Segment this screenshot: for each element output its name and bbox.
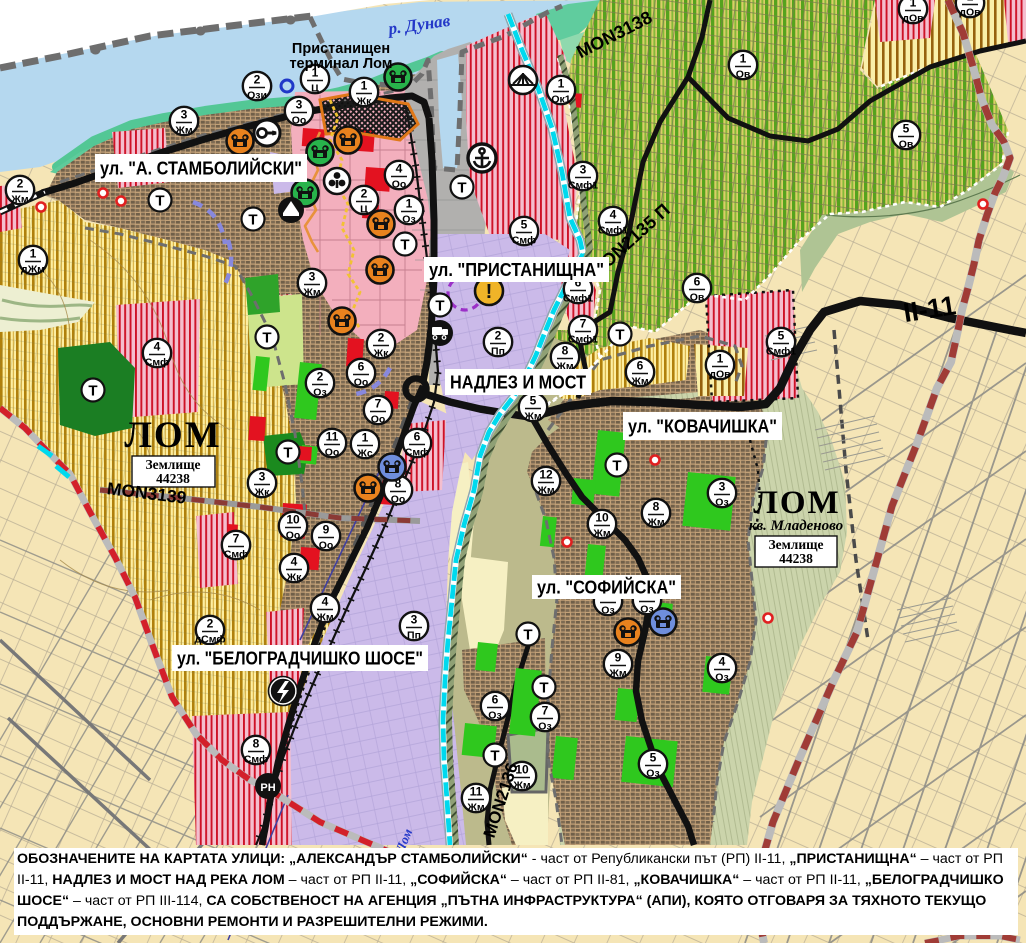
svg-text:ул. "ПРИСТАНИЩНА": ул. "ПРИСТАНИЩНА" <box>429 259 604 280</box>
svg-text:2: 2 <box>207 617 214 631</box>
svg-text:1: 1 <box>910 0 917 10</box>
svg-text:кв. Младеново: кв. Младеново <box>749 518 843 534</box>
svg-text:Ов: Ов <box>736 69 751 81</box>
svg-text:6: 6 <box>414 430 421 444</box>
svg-text:II-11, НАДЛЕЗ И МОСТ НАД РЕКА: II-11, НАДЛЕЗ И МОСТ НАД РЕКА ЛОМ – част… <box>17 870 1004 888</box>
svg-text:2: 2 <box>361 187 368 201</box>
svg-text:Оо: Оо <box>325 447 340 459</box>
svg-text:7: 7 <box>580 317 587 331</box>
svg-text:3: 3 <box>181 108 188 122</box>
svg-text:Оз: Оз <box>715 672 728 684</box>
svg-text:1: 1 <box>30 247 37 261</box>
svg-text:10: 10 <box>595 511 609 525</box>
svg-text:Жм: Жм <box>592 528 610 540</box>
svg-text:11: 11 <box>326 430 339 444</box>
svg-text:Ози: Ози <box>247 90 267 102</box>
svg-text:12: 12 <box>539 468 553 482</box>
svg-text:3: 3 <box>580 163 587 177</box>
svg-text:8: 8 <box>653 500 660 514</box>
svg-text:Смф1: Смф1 <box>766 346 796 358</box>
svg-text:7: 7 <box>542 704 549 718</box>
svg-text:Смф1: Смф1 <box>563 293 593 305</box>
svg-text:3: 3 <box>309 270 316 284</box>
svg-text:1: 1 <box>362 431 369 445</box>
svg-text:44238: 44238 <box>779 551 813 566</box>
svg-text:1: 1 <box>558 77 565 91</box>
svg-text:дОв: дОв <box>959 7 981 19</box>
svg-text:Жм: Жм <box>315 612 333 624</box>
svg-text:ЛОМ: ЛОМ <box>753 485 840 521</box>
svg-text:Смф: Смф <box>244 754 268 766</box>
svg-text:Т: Т <box>155 193 164 210</box>
svg-text:Оз: Оз <box>313 387 326 399</box>
svg-text:Т: Т <box>283 445 292 462</box>
svg-text:1: 1 <box>717 352 724 366</box>
svg-text:Жм: Жм <box>630 376 648 388</box>
svg-text:Оо: Оо <box>319 540 334 552</box>
svg-text:11: 11 <box>470 785 483 799</box>
svg-text:ШОСЕ“ – част от РП III-114, СА: ШОСЕ“ – част от РП III-114, СА СОБСТВЕНО… <box>17 893 986 909</box>
svg-text:Смф1: Смф1 <box>568 180 598 192</box>
svg-text:7: 7 <box>375 397 382 411</box>
svg-text:Оз: Оз <box>402 214 415 226</box>
svg-text:8: 8 <box>562 344 569 358</box>
svg-text:Смф1: Смф1 <box>568 334 598 346</box>
svg-text:Оо: Оо <box>371 414 386 426</box>
svg-text:ул. "А. СТАМБОЛИЙСКИ": ул. "А. СТАМБОЛИЙСКИ" <box>100 158 302 179</box>
svg-text:2: 2 <box>378 331 385 345</box>
svg-text:Т: Т <box>615 327 624 344</box>
svg-text:Жм: Жм <box>174 125 192 137</box>
svg-text:Т: Т <box>539 680 548 697</box>
svg-text:ул. "КОВАЧИШКА": ул. "КОВАЧИШКА" <box>628 416 777 437</box>
svg-text:Т: Т <box>523 627 532 644</box>
svg-text:5: 5 <box>521 218 528 232</box>
svg-text:терминал Лом: терминал Лом <box>289 56 392 72</box>
svg-text:2: 2 <box>17 177 24 191</box>
svg-text:2: 2 <box>254 73 261 87</box>
svg-text:4: 4 <box>719 655 726 669</box>
svg-text:Ок1: Ок1 <box>551 94 570 106</box>
svg-text:Т: Т <box>400 237 409 254</box>
svg-text:3: 3 <box>411 613 418 627</box>
svg-text:3: 3 <box>719 480 726 494</box>
svg-text:Пп: Пп <box>491 346 505 358</box>
svg-text:5: 5 <box>778 329 785 343</box>
svg-text:44238: 44238 <box>156 471 190 486</box>
svg-text:Т: Т <box>262 330 271 347</box>
svg-text:Жк: Жк <box>373 348 389 360</box>
svg-text:Т: Т <box>612 458 621 475</box>
svg-text:Жм: Жм <box>536 485 554 497</box>
svg-text:5: 5 <box>903 122 910 136</box>
svg-text:2: 2 <box>317 370 324 384</box>
svg-text:7: 7 <box>233 532 240 546</box>
svg-text:Пп: Пп <box>407 630 421 642</box>
svg-text:Оз: Оз <box>538 721 551 733</box>
svg-text:Жс: Жс <box>356 448 372 460</box>
svg-text:РН: РН <box>260 782 275 794</box>
svg-text:Жм: Жм <box>10 194 28 206</box>
svg-text:Жк: Жк <box>356 96 372 108</box>
svg-text:Оо: Оо <box>392 179 407 191</box>
svg-text:Жм: Жм <box>523 411 541 423</box>
svg-text:1: 1 <box>967 0 974 4</box>
svg-text:Ц: Ц <box>360 204 368 216</box>
svg-text:4: 4 <box>154 340 161 354</box>
svg-text:5: 5 <box>530 394 537 408</box>
svg-text:Смф: Смф <box>405 447 429 459</box>
svg-text:6: 6 <box>358 360 365 374</box>
svg-text:6: 6 <box>637 359 644 373</box>
svg-text:4: 4 <box>610 208 617 222</box>
svg-text:Т: Т <box>88 383 97 400</box>
svg-text:Оо: Оо <box>354 377 369 389</box>
svg-text:Жм: Жм <box>646 517 664 529</box>
svg-text:9: 9 <box>615 651 622 665</box>
svg-text:6: 6 <box>492 693 499 707</box>
svg-text:1: 1 <box>406 197 413 211</box>
svg-text:дОв: дОв <box>709 369 731 381</box>
svg-text:!: ! <box>486 281 493 303</box>
svg-text:Ов: Ов <box>690 292 705 304</box>
svg-text:Землище: Землище <box>145 457 200 472</box>
svg-text:5: 5 <box>650 751 657 765</box>
svg-text:8: 8 <box>253 737 260 751</box>
svg-text:Оо: Оо <box>391 494 406 506</box>
svg-text:Жм: Жм <box>302 287 320 299</box>
svg-text:4: 4 <box>322 595 329 609</box>
svg-text:Оо: Оо <box>286 530 301 542</box>
svg-text:Т: Т <box>248 212 257 229</box>
svg-text:дОв: дОв <box>902 13 924 25</box>
svg-text:Жк: Жк <box>286 572 302 584</box>
svg-text:6: 6 <box>694 275 701 289</box>
svg-text:Оз: Оз <box>601 605 614 617</box>
svg-text:Т: Т <box>435 298 444 315</box>
svg-text:Пристанищен: Пристанищен <box>292 41 390 57</box>
svg-text:Смф: Смф <box>512 235 536 247</box>
svg-text:ЛОМ: ЛОМ <box>124 415 221 456</box>
svg-text:Смф: Смф <box>224 549 248 561</box>
svg-text:Оз: Оз <box>715 497 728 509</box>
svg-text:Ов: Ов <box>899 139 914 151</box>
svg-text:Т: Т <box>457 180 466 197</box>
svg-text:Оо: Оо <box>292 115 307 127</box>
svg-text:4: 4 <box>291 555 298 569</box>
svg-text:Жк: Жк <box>254 487 270 499</box>
svg-text:Оз: Оз <box>488 710 501 722</box>
svg-text:ул. "БЕЛОГРАДЧИШКО ШОСЕ": ул. "БЕЛОГРАДЧИШКО ШОСЕ" <box>177 648 423 669</box>
svg-text:1: 1 <box>361 79 368 93</box>
svg-text:Жм: Жм <box>466 802 484 814</box>
svg-text:9: 9 <box>323 523 330 537</box>
svg-text:Жм: Жм <box>608 668 626 680</box>
svg-text:4: 4 <box>396 162 403 176</box>
svg-text:1: 1 <box>740 52 747 66</box>
svg-text:3: 3 <box>259 470 266 484</box>
svg-text:ул. "СОФИЙСКА": ул. "СОФИЙСКА" <box>537 577 676 598</box>
svg-text:ПОДДЪРЖАНЕ, ОСНОВНИ РЕМОНТИ И: ПОДДЪРЖАНЕ, ОСНОВНИ РЕМОНТИ И РАЗРЕШИТЕЛ… <box>17 914 488 930</box>
svg-text:Смф: Смф <box>145 357 169 369</box>
svg-text:3: 3 <box>296 98 303 112</box>
svg-text:ОБОЗНАЧЕНИТЕ НА КАРТАТА УЛИЦИ:: ОБОЗНАЧЕНИТЕ НА КАРТАТА УЛИЦИ: „АЛЕКСАНД… <box>17 849 1003 867</box>
svg-text:Ц: Ц <box>311 83 319 95</box>
svg-text:2: 2 <box>495 329 502 343</box>
svg-text:НАДЛЕЗ И МОСТ: НАДЛЕЗ И МОСТ <box>450 372 587 393</box>
svg-text:Т: Т <box>490 748 499 765</box>
svg-text:дСмф: дСмф <box>194 634 225 646</box>
svg-text:Оз: Оз <box>646 768 659 780</box>
svg-text:10: 10 <box>286 513 300 527</box>
svg-text:Землище: Землище <box>768 537 823 552</box>
svg-text:дЖм: дЖм <box>21 264 45 276</box>
